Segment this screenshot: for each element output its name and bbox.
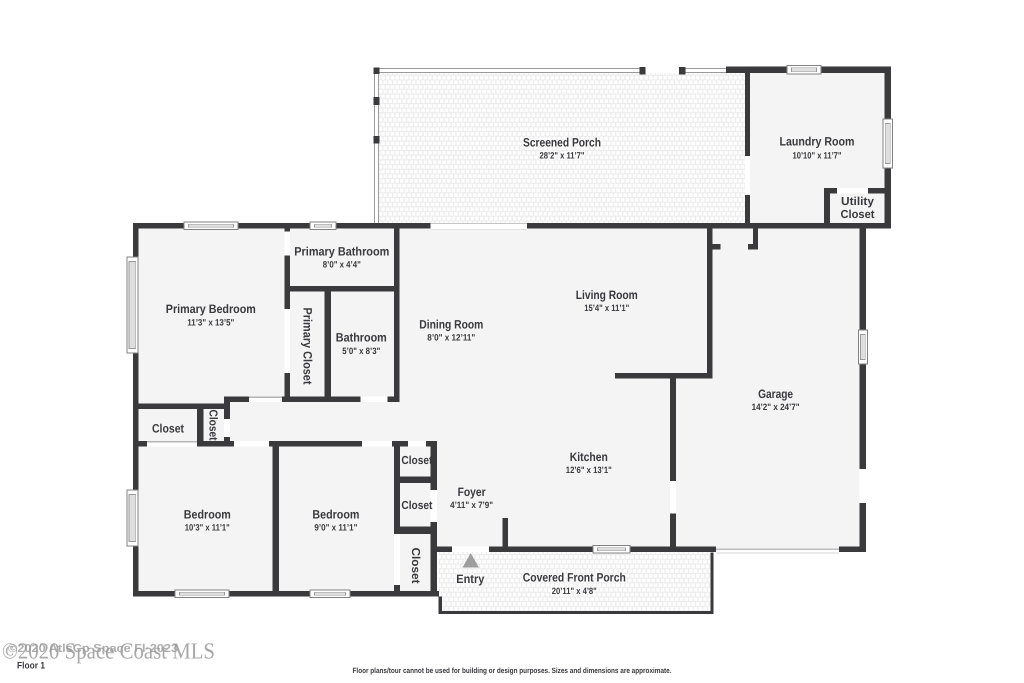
svg-text:Entry: Entry xyxy=(456,572,484,586)
svg-text:Primary Bathroom: Primary Bathroom xyxy=(294,244,389,258)
svg-text:11’3" x 13’5": 11’3" x 13’5" xyxy=(187,317,234,327)
svg-text:9’0" x 11’1": 9’0" x 11’1" xyxy=(314,522,357,532)
svg-text:14’2" x 24’7": 14’2" x 24’7" xyxy=(752,402,800,412)
svg-text:Screened Porch: Screened Porch xyxy=(523,135,601,149)
svg-text:Living Room: Living Room xyxy=(576,288,638,302)
svg-text:Primary Bedroom: Primary Bedroom xyxy=(166,302,256,316)
svg-text:Closet: Closet xyxy=(206,410,219,441)
svg-text:20’11" x 4’8": 20’11" x 4’8" xyxy=(552,586,597,596)
svg-text:Floor plans/tour cannot be use: Floor plans/tour cannot be used for buil… xyxy=(353,666,672,675)
svg-text:Bathroom: Bathroom xyxy=(336,330,387,344)
svg-text:Bedroom: Bedroom xyxy=(184,507,231,521)
svg-text:5’0" x 8’3": 5’0" x 8’3" xyxy=(342,346,380,356)
svg-text:Bedroom: Bedroom xyxy=(312,507,359,521)
svg-text:Closet: Closet xyxy=(401,499,432,512)
svg-text:Closet: Closet xyxy=(401,454,432,467)
svg-text:12’6" x 13’1": 12’6" x 13’1" xyxy=(566,465,612,475)
svg-text:Closet: Closet xyxy=(152,421,184,435)
svg-text:28’2" x 11’7": 28’2" x 11’7" xyxy=(540,150,585,160)
svg-text:Closet: Closet xyxy=(841,208,875,221)
svg-text:Garage: Garage xyxy=(758,387,793,401)
svg-text:©2020 AtlsCp Space Fl·2023: ©2020 AtlsCp Space Fl·2023 xyxy=(8,643,178,655)
svg-text:10’10" x 11’7": 10’10" x 11’7" xyxy=(793,150,842,160)
svg-text:Laundry Room: Laundry Room xyxy=(780,134,855,148)
svg-text:Dining Room: Dining Room xyxy=(419,317,483,331)
svg-text:Closet: Closet xyxy=(409,548,422,584)
svg-text:10’3" x 11’1": 10’3" x 11’1" xyxy=(185,522,230,532)
svg-text:Foyer: Foyer xyxy=(458,485,486,499)
svg-text:Floor 1: Floor 1 xyxy=(17,661,46,672)
svg-text:4’11" x 7’9": 4’11" x 7’9" xyxy=(450,500,493,510)
svg-text:Kitchen: Kitchen xyxy=(570,450,608,464)
svg-text:8’0" x 4’4": 8’0" x 4’4" xyxy=(323,259,361,269)
svg-text:8’0" x 12’11": 8’0" x 12’11" xyxy=(427,332,475,342)
svg-text:Covered Front Porch: Covered Front Porch xyxy=(523,570,626,584)
svg-text:Utility: Utility xyxy=(841,195,875,208)
svg-text:15’4" x 11’1": 15’4" x 11’1" xyxy=(584,303,629,313)
svg-text:Primary Closet: Primary Closet xyxy=(300,308,314,385)
